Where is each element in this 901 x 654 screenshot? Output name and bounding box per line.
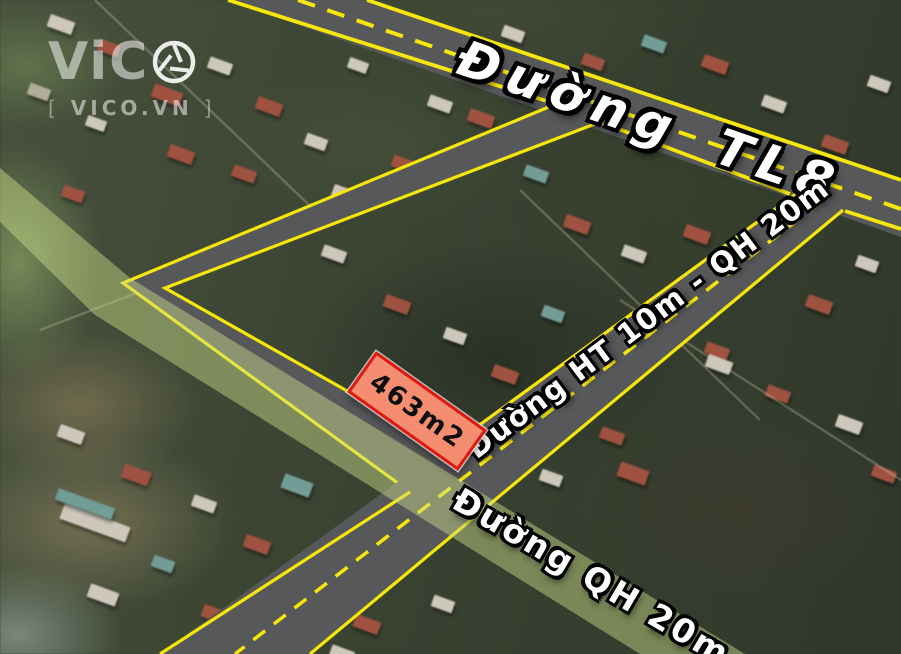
watermark-brand: ViC <box>48 36 216 88</box>
watermark-domain-row: [ VICO.VN ] <box>48 96 216 120</box>
watermark-domain: VICO.VN <box>71 96 193 120</box>
vico-watermark: ViC [ VICO.VN ] <box>48 36 216 120</box>
aerial-map: Đường TL8 Đường HT 10m - QH 20m Đường QH… <box>0 0 901 654</box>
aperture-o-icon <box>151 39 197 85</box>
